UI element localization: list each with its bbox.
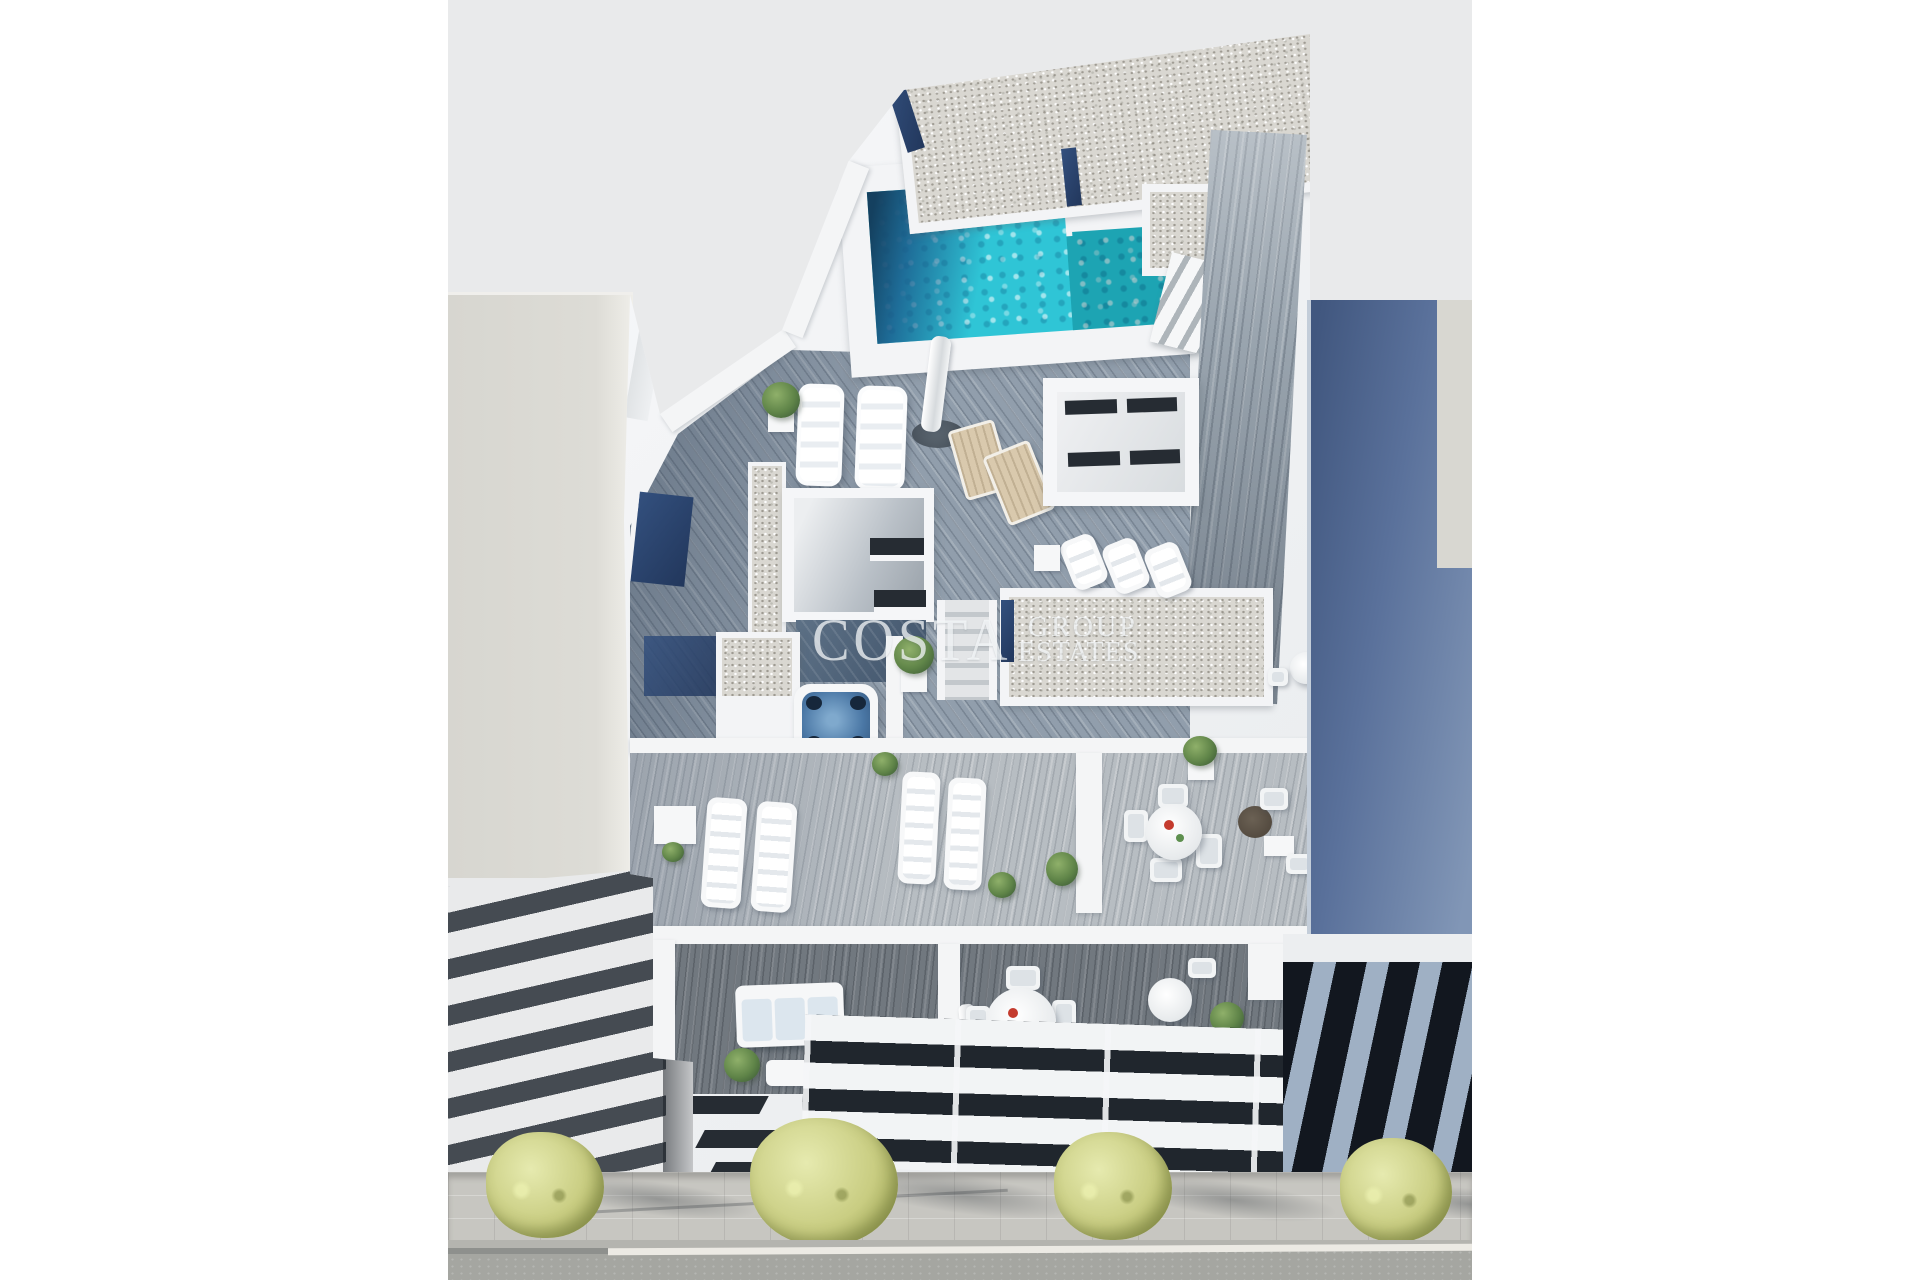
skylight-box-a (1043, 378, 1199, 506)
sun-lounger-4 (943, 777, 987, 891)
bistro-table (1264, 836, 1294, 856)
dining-chair-3 (1150, 858, 1182, 882)
potted-plant-3 (662, 842, 684, 862)
potted-plant-5 (988, 872, 1016, 898)
potted-plant-4 (872, 752, 898, 776)
bistro-parasol-top (1238, 806, 1272, 838)
neighbor-left-building (448, 292, 633, 878)
terrace-parapet (630, 738, 1327, 753)
potted-plant-2 (894, 636, 934, 674)
shrub-1 (1046, 852, 1078, 886)
sun-lounger-3 (897, 771, 941, 885)
navy-solar-strip-4 (1001, 600, 1014, 662)
sun-lounger-1 (700, 797, 748, 910)
side-table-1 (1034, 545, 1060, 571)
skylight-box-b (782, 488, 934, 622)
terrace-partition (1076, 753, 1102, 913)
balcony-parapet (630, 926, 1327, 944)
balcony-bistro-chair-1 (1188, 958, 1216, 978)
architectural-render-photo: COSTA GROUP ESTATES (448, 0, 1472, 1280)
mid-gravel-roof (1000, 588, 1273, 706)
dining-chair-2 (1124, 810, 1148, 842)
facade-slit-1 (683, 1096, 769, 1114)
bistro-chair-1 (1260, 788, 1288, 810)
navy-glass-slab (644, 636, 716, 696)
potted-plant-1 (762, 382, 800, 418)
street-tree-2 (750, 1118, 898, 1246)
street-tree-4 (1340, 1138, 1452, 1242)
parapet-plant (1183, 736, 1217, 766)
walkway-bistro-chair (1268, 668, 1288, 686)
balcony-bistro-table (1148, 978, 1192, 1022)
neighbor-right-beige-sliver (1437, 300, 1472, 568)
plush-lounger-2 (854, 385, 908, 491)
corner-tower-shading (624, 301, 668, 421)
lane-line-dark-segment (448, 1248, 608, 1254)
potted-plant-6 (724, 1048, 760, 1082)
sun-lounger-2 (750, 801, 798, 914)
internal-stair (937, 600, 997, 700)
street-tree-3 (1054, 1132, 1172, 1240)
street-tree-1 (486, 1132, 604, 1238)
neighbor-right-roof-edge (1283, 934, 1472, 964)
plush-lounger-1 (795, 383, 845, 487)
balcony-chair-1 (1006, 966, 1040, 990)
gravel-cube (716, 632, 800, 738)
navy-planter-wedge (625, 491, 693, 587)
dining-table (1146, 804, 1202, 860)
render-canvas: COSTA GROUP ESTATES (0, 0, 1920, 1280)
side-table-2 (654, 806, 696, 844)
